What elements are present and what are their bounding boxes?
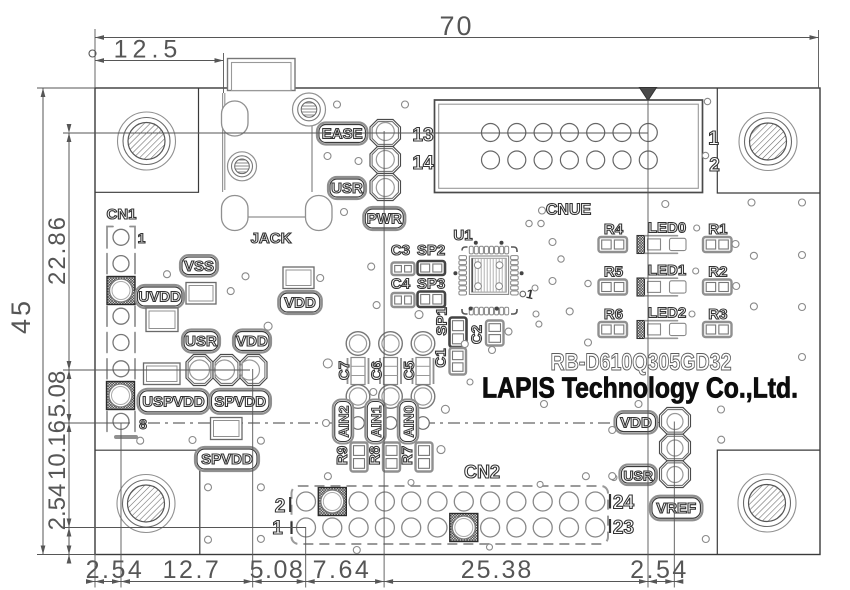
svg-text:C7: C7 xyxy=(336,361,353,380)
svg-text:2.54: 2.54 xyxy=(630,556,689,584)
svg-text:C4: C4 xyxy=(391,276,411,293)
svg-text:VDD: VDD xyxy=(284,295,316,312)
svg-text:C3: C3 xyxy=(391,242,410,259)
svg-text:VDD: VDD xyxy=(620,414,652,431)
svg-text:R7: R7 xyxy=(399,446,416,465)
svg-text:CN1: CN1 xyxy=(106,206,136,223)
svg-text:5.08: 5.08 xyxy=(44,371,71,418)
svg-text:AIN1: AIN1 xyxy=(368,405,384,437)
svg-text:23: 23 xyxy=(613,518,634,539)
svg-text:C1: C1 xyxy=(432,348,449,367)
svg-text:10.16: 10.16 xyxy=(44,420,71,480)
svg-text:VSS: VSS xyxy=(184,258,214,275)
svg-text:CNUE: CNUE xyxy=(546,202,592,219)
svg-text:14: 14 xyxy=(412,153,434,174)
svg-text:45: 45 xyxy=(6,298,36,334)
svg-text:CN2: CN2 xyxy=(464,462,500,482)
svg-text:R8: R8 xyxy=(367,446,384,465)
svg-text:VDD: VDD xyxy=(236,333,268,350)
svg-text:USR: USR xyxy=(623,467,653,483)
svg-text:2: 2 xyxy=(275,496,286,517)
svg-text:SP3: SP3 xyxy=(417,276,445,293)
svg-text:EASE: EASE xyxy=(322,126,363,143)
svg-text:R6: R6 xyxy=(604,306,623,323)
svg-text:1: 1 xyxy=(272,518,283,539)
svg-text:24: 24 xyxy=(613,493,635,514)
svg-text:2.54: 2.54 xyxy=(44,484,71,531)
svg-text:USPVDD: USPVDD xyxy=(142,393,205,410)
svg-text:R2: R2 xyxy=(708,264,727,281)
svg-text:2: 2 xyxy=(709,155,720,176)
svg-text:JACK: JACK xyxy=(251,230,292,247)
svg-text:LED1: LED1 xyxy=(648,262,686,279)
svg-text:C6: C6 xyxy=(369,361,386,380)
svg-text:25.38: 25.38 xyxy=(461,556,534,584)
svg-text:8: 8 xyxy=(139,416,147,432)
svg-text:UVDD: UVDD xyxy=(138,289,181,306)
svg-text:22.86: 22.86 xyxy=(44,215,71,285)
svg-text:1: 1 xyxy=(138,230,146,246)
svg-text:R4: R4 xyxy=(604,221,624,238)
svg-text:C2: C2 xyxy=(469,325,486,344)
svg-text:LED0: LED0 xyxy=(648,220,686,237)
svg-text:70: 70 xyxy=(439,11,473,41)
svg-text:U1: U1 xyxy=(453,227,472,244)
svg-text:SP2: SP2 xyxy=(417,242,445,259)
svg-text:R9: R9 xyxy=(334,446,351,465)
svg-text:SPVDD: SPVDD xyxy=(201,451,253,468)
svg-text:VREF: VREF xyxy=(656,500,696,517)
svg-text:AIN2: AIN2 xyxy=(336,405,352,437)
svg-text:SPVDD: SPVDD xyxy=(214,393,266,410)
svg-text:SP1: SP1 xyxy=(433,307,450,335)
svg-text:LAPIS Technology Co.,Ltd.: LAPIS Technology Co.,Ltd. xyxy=(482,373,798,405)
svg-text:USR: USR xyxy=(331,180,363,197)
svg-text:R5: R5 xyxy=(604,264,623,281)
svg-text:7.64: 7.64 xyxy=(313,556,372,584)
svg-text:13: 13 xyxy=(412,125,433,146)
svg-text:AIN0: AIN0 xyxy=(401,405,417,437)
svg-text:C5: C5 xyxy=(401,361,418,380)
svg-text:R3: R3 xyxy=(708,306,727,323)
svg-text:LED2: LED2 xyxy=(648,305,686,322)
svg-text:5.08: 5.08 xyxy=(250,556,305,584)
svg-text:1: 1 xyxy=(708,129,719,150)
svg-text:2.54: 2.54 xyxy=(86,556,145,584)
svg-text:12.5: 12.5 xyxy=(114,36,183,64)
svg-text:R1: R1 xyxy=(708,221,727,238)
svg-text:12.7: 12.7 xyxy=(163,556,222,584)
svg-text:USR: USR xyxy=(185,333,217,350)
